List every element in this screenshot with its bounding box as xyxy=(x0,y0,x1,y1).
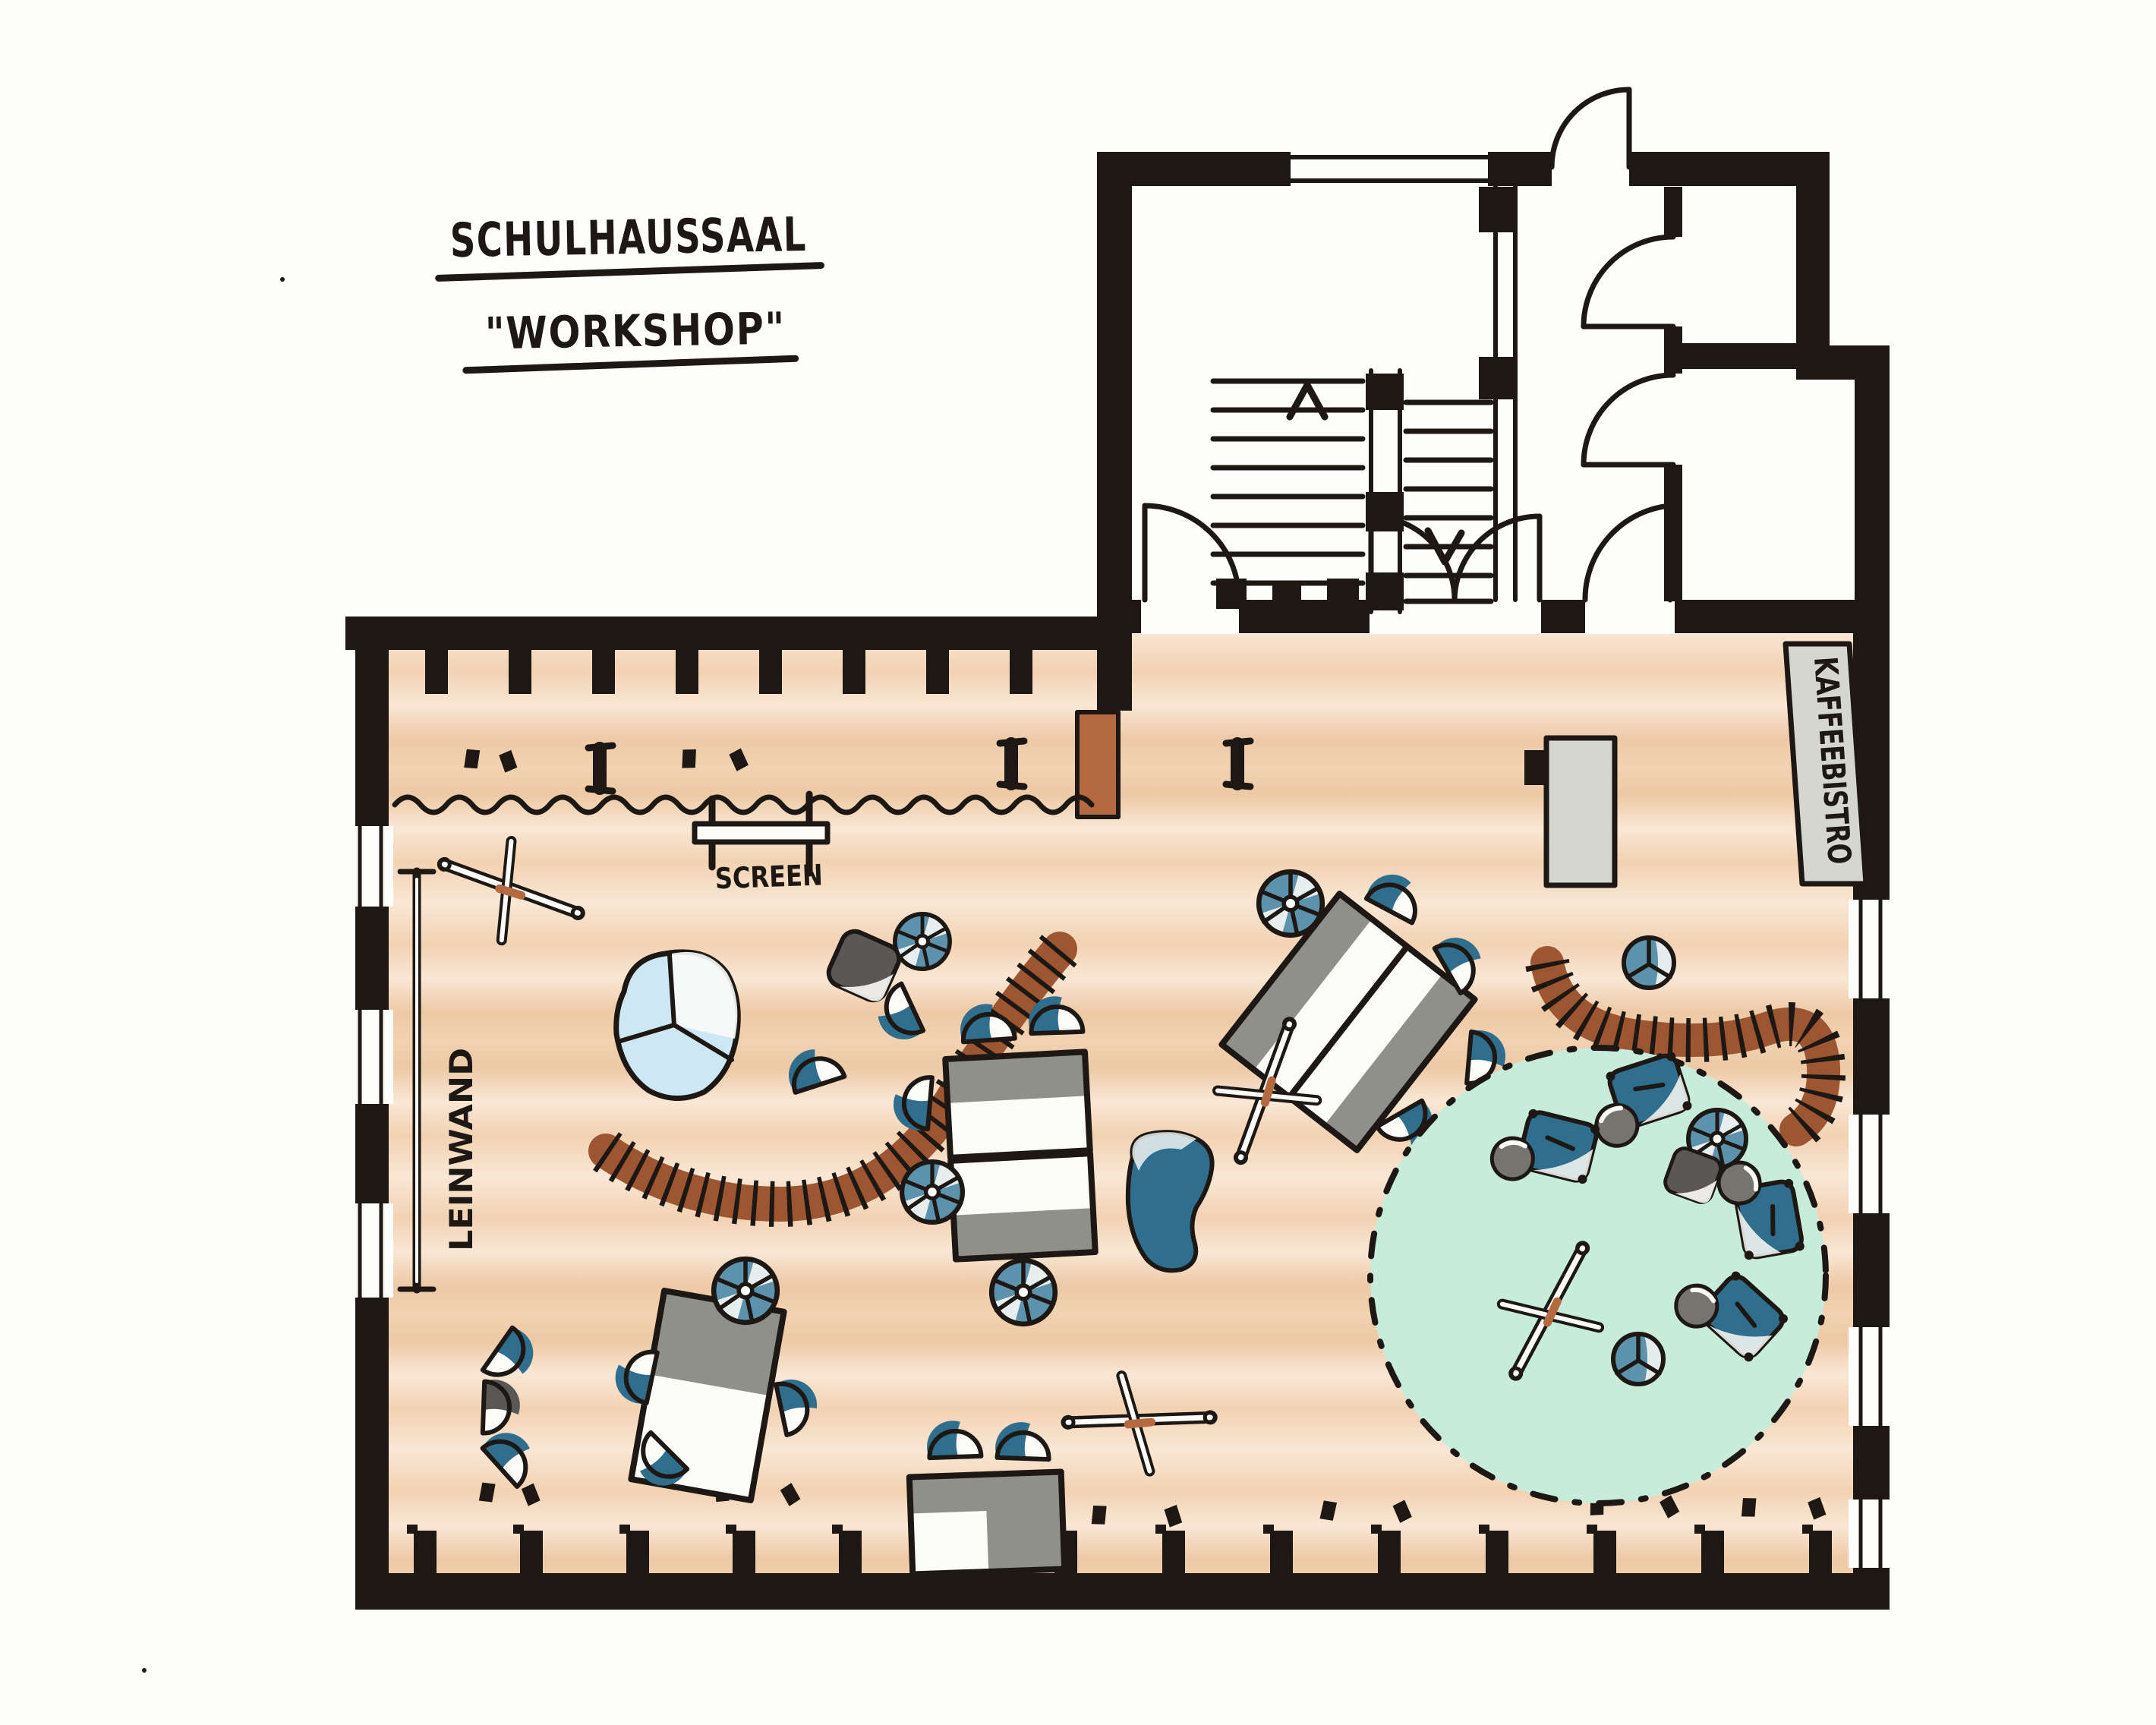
leinwand-label: LEINWAND xyxy=(443,1048,480,1251)
window xyxy=(1849,1115,1894,1213)
column-stub xyxy=(759,650,782,694)
swivel-chair xyxy=(895,914,950,969)
page-title: SCHULHAUSSAAL xyxy=(449,207,807,268)
wall-annex-top-a xyxy=(1097,152,1291,186)
window xyxy=(349,1203,393,1298)
window xyxy=(349,1010,393,1104)
page-subtitle: "WORKSHOP" xyxy=(484,302,786,359)
table-bottom-center xyxy=(909,1472,1064,1575)
wall-annex-left xyxy=(1097,152,1132,711)
column-stub xyxy=(509,650,531,694)
annex-top-window xyxy=(1291,153,1488,184)
swivel-chair xyxy=(902,1162,963,1222)
ink-speck xyxy=(142,1668,147,1673)
wall-left xyxy=(355,617,389,1610)
window xyxy=(1849,900,1894,998)
ball-seat xyxy=(1624,938,1674,988)
floorplan-sketch: SCHULHAUSSAAL "WORKSHOP" xyxy=(0,0,2156,1725)
left-wall-windows xyxy=(349,826,393,1298)
column-stub xyxy=(425,650,448,694)
swivel-chair xyxy=(1259,872,1322,935)
column-stub xyxy=(843,650,865,694)
wall-bottom xyxy=(355,1573,1890,1610)
table-group-center xyxy=(945,1052,1095,1259)
window xyxy=(1849,1500,1894,1568)
boulder-beanbag xyxy=(616,952,739,1099)
column-stub xyxy=(1010,650,1032,694)
wall-annex-top-b xyxy=(1488,152,1552,186)
column-stub xyxy=(676,650,698,694)
circle-lounge xyxy=(1370,1048,1826,1503)
window xyxy=(349,826,393,907)
wall-room-divider xyxy=(1682,343,1796,369)
swivel-chair xyxy=(714,1259,777,1323)
ink-speck xyxy=(280,277,285,282)
screen-label: SCREEN xyxy=(714,858,823,895)
column-stub xyxy=(926,650,949,694)
open-door-leaf xyxy=(1077,712,1118,817)
window xyxy=(1849,1327,1894,1426)
wall-annex-right-upper xyxy=(1796,152,1830,364)
wall-annex-right-lower xyxy=(1855,363,1890,603)
column-stub xyxy=(592,650,615,694)
ball-seat xyxy=(1613,1334,1663,1384)
kaffeebistro-sign: KAFFEEBISTRO xyxy=(1786,644,1866,884)
swivel-chair xyxy=(991,1260,1055,1324)
wall-top-left xyxy=(345,617,1098,650)
